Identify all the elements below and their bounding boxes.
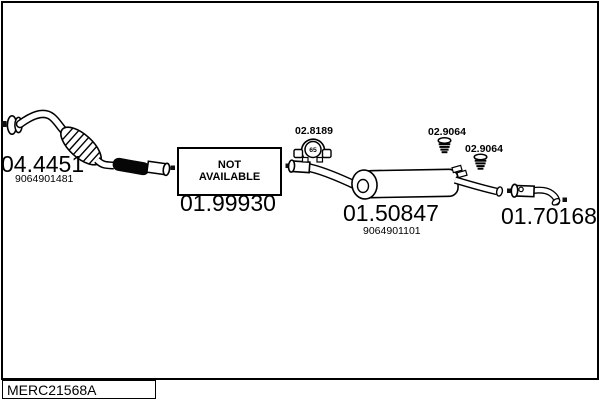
hanger-icon: [438, 138, 451, 152]
exhaust-diagram-art: 65: [0, 0, 600, 400]
not-available-line2: AVAILABLE: [199, 172, 260, 184]
part-code-hanger-rear: 02.9064: [465, 144, 503, 155]
muffler-inlet-icon: [358, 180, 369, 193]
not-available-box: NOT AVAILABLE: [177, 147, 282, 196]
not-available-line1: NOT: [218, 160, 241, 172]
rear-muffler-drawing: [350, 165, 503, 200]
flex-pipe-icon: [112, 157, 151, 176]
part-code-tail-pipe: 01.70168: [501, 205, 597, 228]
pipe-clamp-icon: [511, 184, 518, 197]
oe-number-front-pipe: 9064901481: [15, 174, 73, 185]
drawing-code-label: MERC21568A: [7, 382, 97, 398]
part-code-clamp: 02.8189: [295, 126, 333, 137]
hanger-icon: [474, 154, 487, 168]
part-code-center-section: 01.99930: [180, 192, 276, 215]
flange-bolt-icon: [1, 121, 7, 127]
oe-number-rear-muffler: 9064901101: [363, 226, 421, 237]
connector-bolt-icon: [171, 166, 176, 171]
center-connector-drawing: [286, 160, 358, 186]
drawing-code-box: MERC21568A: [2, 380, 156, 399]
part-code-hanger-front: 02.9064: [428, 127, 466, 138]
connector-bolt-icon: [563, 198, 568, 203]
part-code-rear-muffler: 01.50847: [343, 202, 439, 225]
clamp-icon: 65: [294, 139, 331, 162]
clamp-diameter-label: 65: [309, 147, 317, 154]
